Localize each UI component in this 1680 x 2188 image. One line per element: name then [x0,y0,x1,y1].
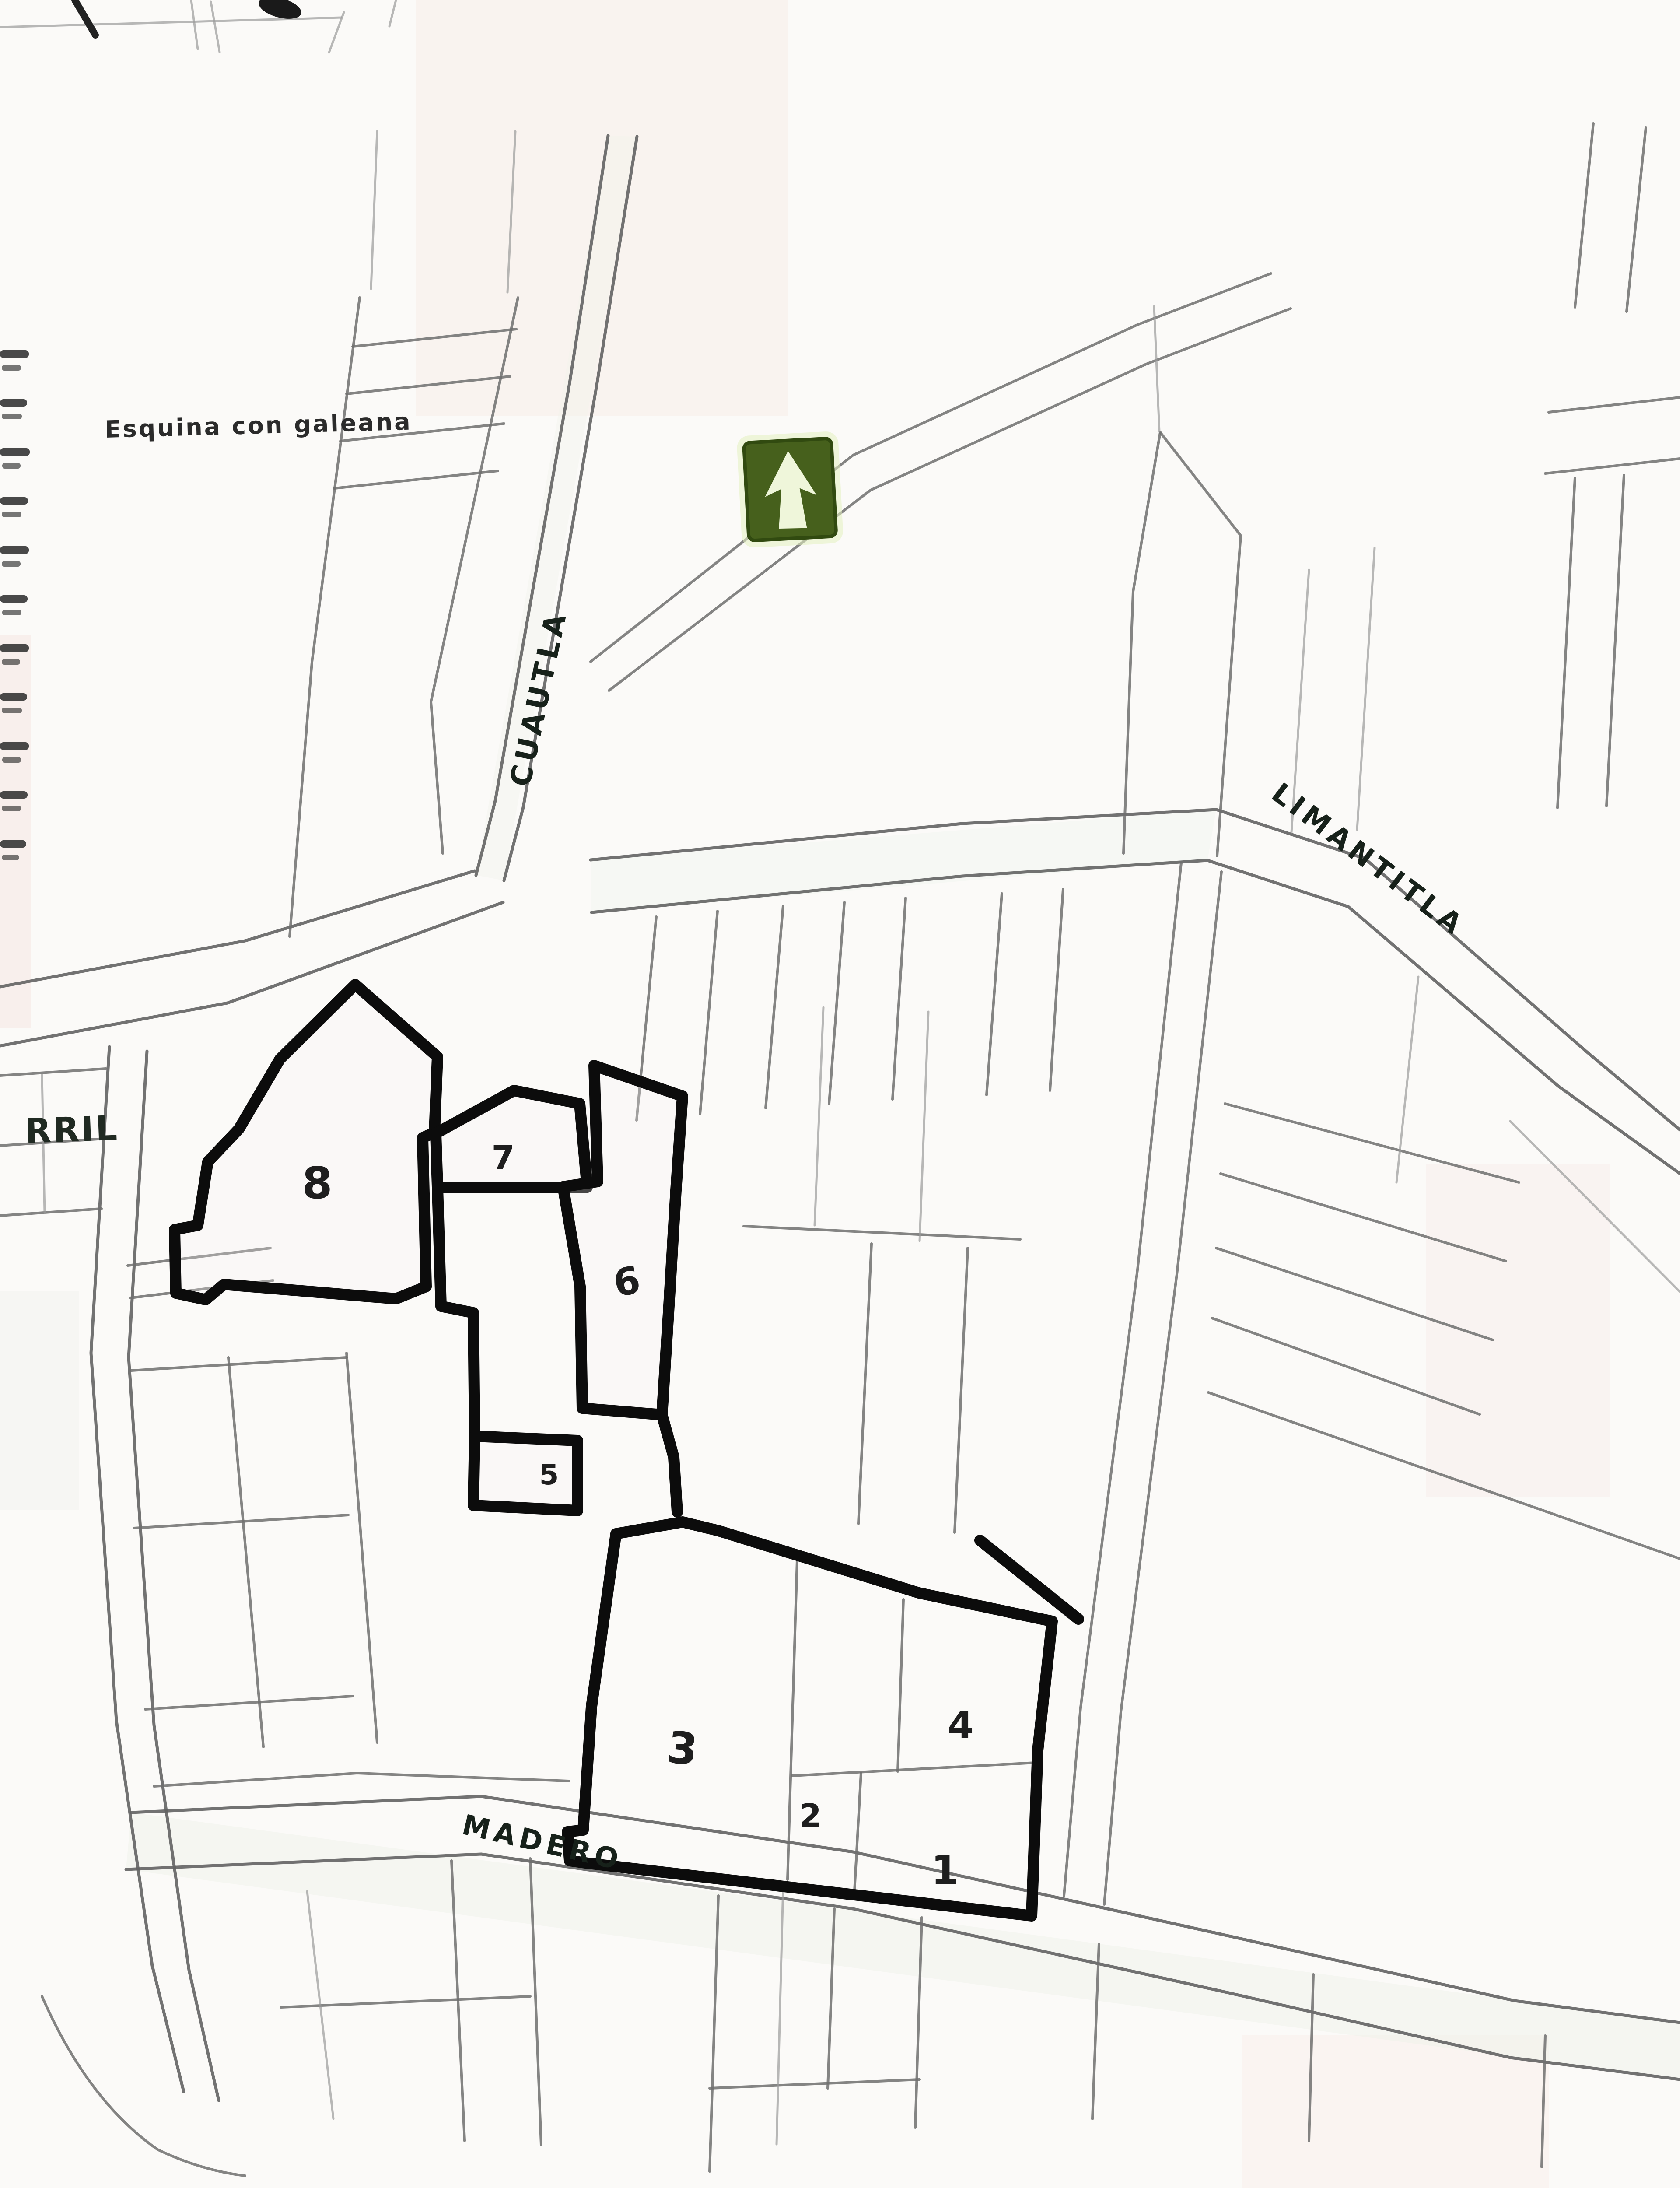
scanned-street-map: Esquina con galeana CUAUTLA LIMANTITLA M… [0,0,1680,2188]
parcel-7-label: 7 [492,1138,515,1177]
parcel-4-label: 4 [948,1704,974,1747]
parcel-5-outline [473,1436,577,1511]
parcel-5-label: 5 [539,1459,559,1491]
north-arrow-icon [736,431,843,548]
parcel-1-label: 1 [931,1847,959,1893]
map-svg: Esquina con galeana CUAUTLA LIMANTITLA M… [0,0,1680,2188]
parcel-2-label: 2 [799,1797,822,1835]
parcel-8-label: 8 [302,1157,332,1209]
paper-washes [0,0,1680,2188]
street-label-rril: RRIL [24,1109,120,1151]
parcel-3-label: 3 [665,1722,700,1776]
